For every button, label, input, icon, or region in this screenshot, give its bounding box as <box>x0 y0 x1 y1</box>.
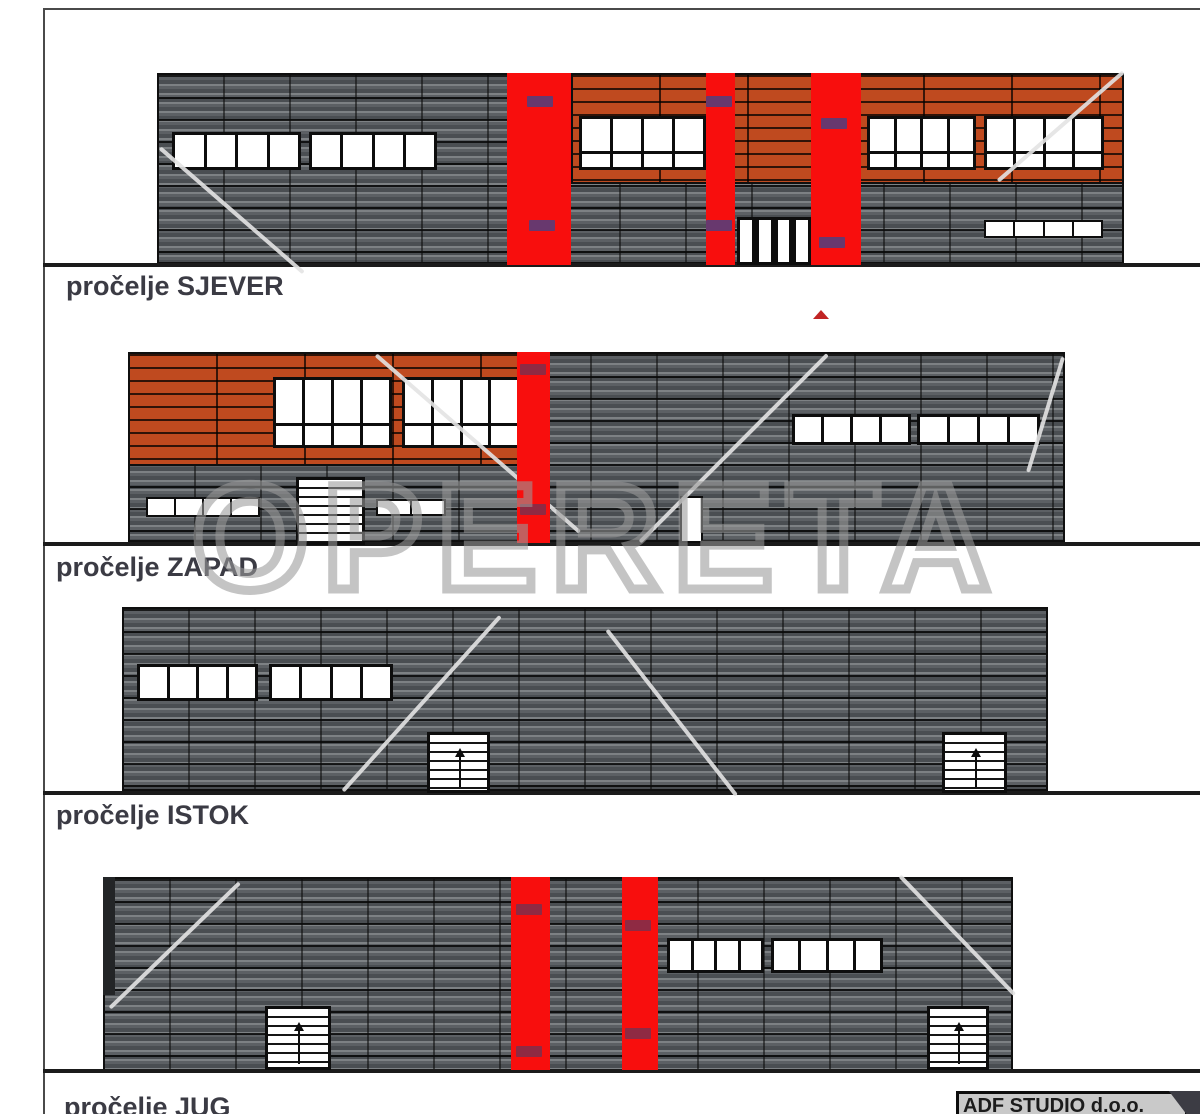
panel-code-chip <box>821 118 847 129</box>
istok-sectional-door <box>942 732 1007 793</box>
zapad-sectional-door <box>296 477 365 545</box>
sjever-glazed-door <box>737 217 811 265</box>
caption-zapad: pročelje ZAPAD <box>56 552 258 583</box>
jug-red-stripe <box>622 877 658 1070</box>
sjever-window-strip <box>172 132 301 170</box>
jug-window-strip <box>667 938 764 973</box>
jug-edge-column <box>103 877 115 995</box>
zapad-window-band <box>273 377 392 448</box>
sjever-window-band <box>579 116 706 170</box>
jug-sectional-door <box>265 1006 331 1070</box>
frame-left-border <box>43 8 45 1114</box>
panel-code-chip <box>706 96 732 107</box>
ground-line <box>43 263 1200 267</box>
istok-sectional-door <box>427 732 490 793</box>
ground-line <box>43 791 1200 795</box>
elevation-drawing-sheet: pročelje SJEVER pročelje ZAPAD OPERETA <box>0 0 1200 1114</box>
up-arrow-icon <box>975 752 977 788</box>
jug-window-strip <box>771 938 883 973</box>
panel-code-chip <box>706 220 732 231</box>
sjever-window-strip <box>309 132 437 170</box>
up-arrow-icon <box>958 1026 960 1064</box>
stamp-box: ADF STUDIO d.o.o. <box>956 1091 1188 1114</box>
caption-jug: pročelje JUG <box>64 1092 231 1114</box>
zapad-low-window-strip <box>376 499 446 516</box>
zapad-window-strip <box>792 414 911 445</box>
frame-top-border <box>43 8 1200 10</box>
zapad-low-window-strip <box>146 497 260 517</box>
zapad-door <box>680 496 703 543</box>
zapad-window-band <box>402 377 520 448</box>
panel-code-chip <box>527 96 553 107</box>
ground-line <box>43 542 1200 546</box>
sjever-low-window-strip <box>984 220 1103 238</box>
panel-code-chip <box>625 920 651 931</box>
zapad-window-strip <box>917 414 1040 445</box>
panel-code-chip <box>520 364 546 375</box>
istok-window-strip <box>137 664 258 701</box>
jug-sectional-door <box>927 1006 989 1070</box>
panel-code-chip <box>516 904 542 915</box>
panel-code-chip <box>529 220 555 231</box>
panel-code-chip <box>819 237 845 248</box>
panel-code-chip <box>520 504 546 515</box>
istok-cladding <box>122 607 1048 791</box>
panel-code-chip <box>516 1046 542 1057</box>
red-marker-triangle <box>813 310 829 319</box>
jug-cladding <box>103 877 1013 1071</box>
caption-sjever: pročelje SJEVER <box>66 271 284 302</box>
stamp-company: ADF STUDIO d.o.o. <box>963 1095 1144 1114</box>
panel-code-chip <box>625 1028 651 1039</box>
up-arrow-icon <box>459 752 461 788</box>
caption-istok: pročelje ISTOK <box>56 800 249 831</box>
up-arrow-icon <box>298 1026 300 1064</box>
sjever-window-band <box>867 116 976 170</box>
istok-window-strip <box>269 664 393 701</box>
